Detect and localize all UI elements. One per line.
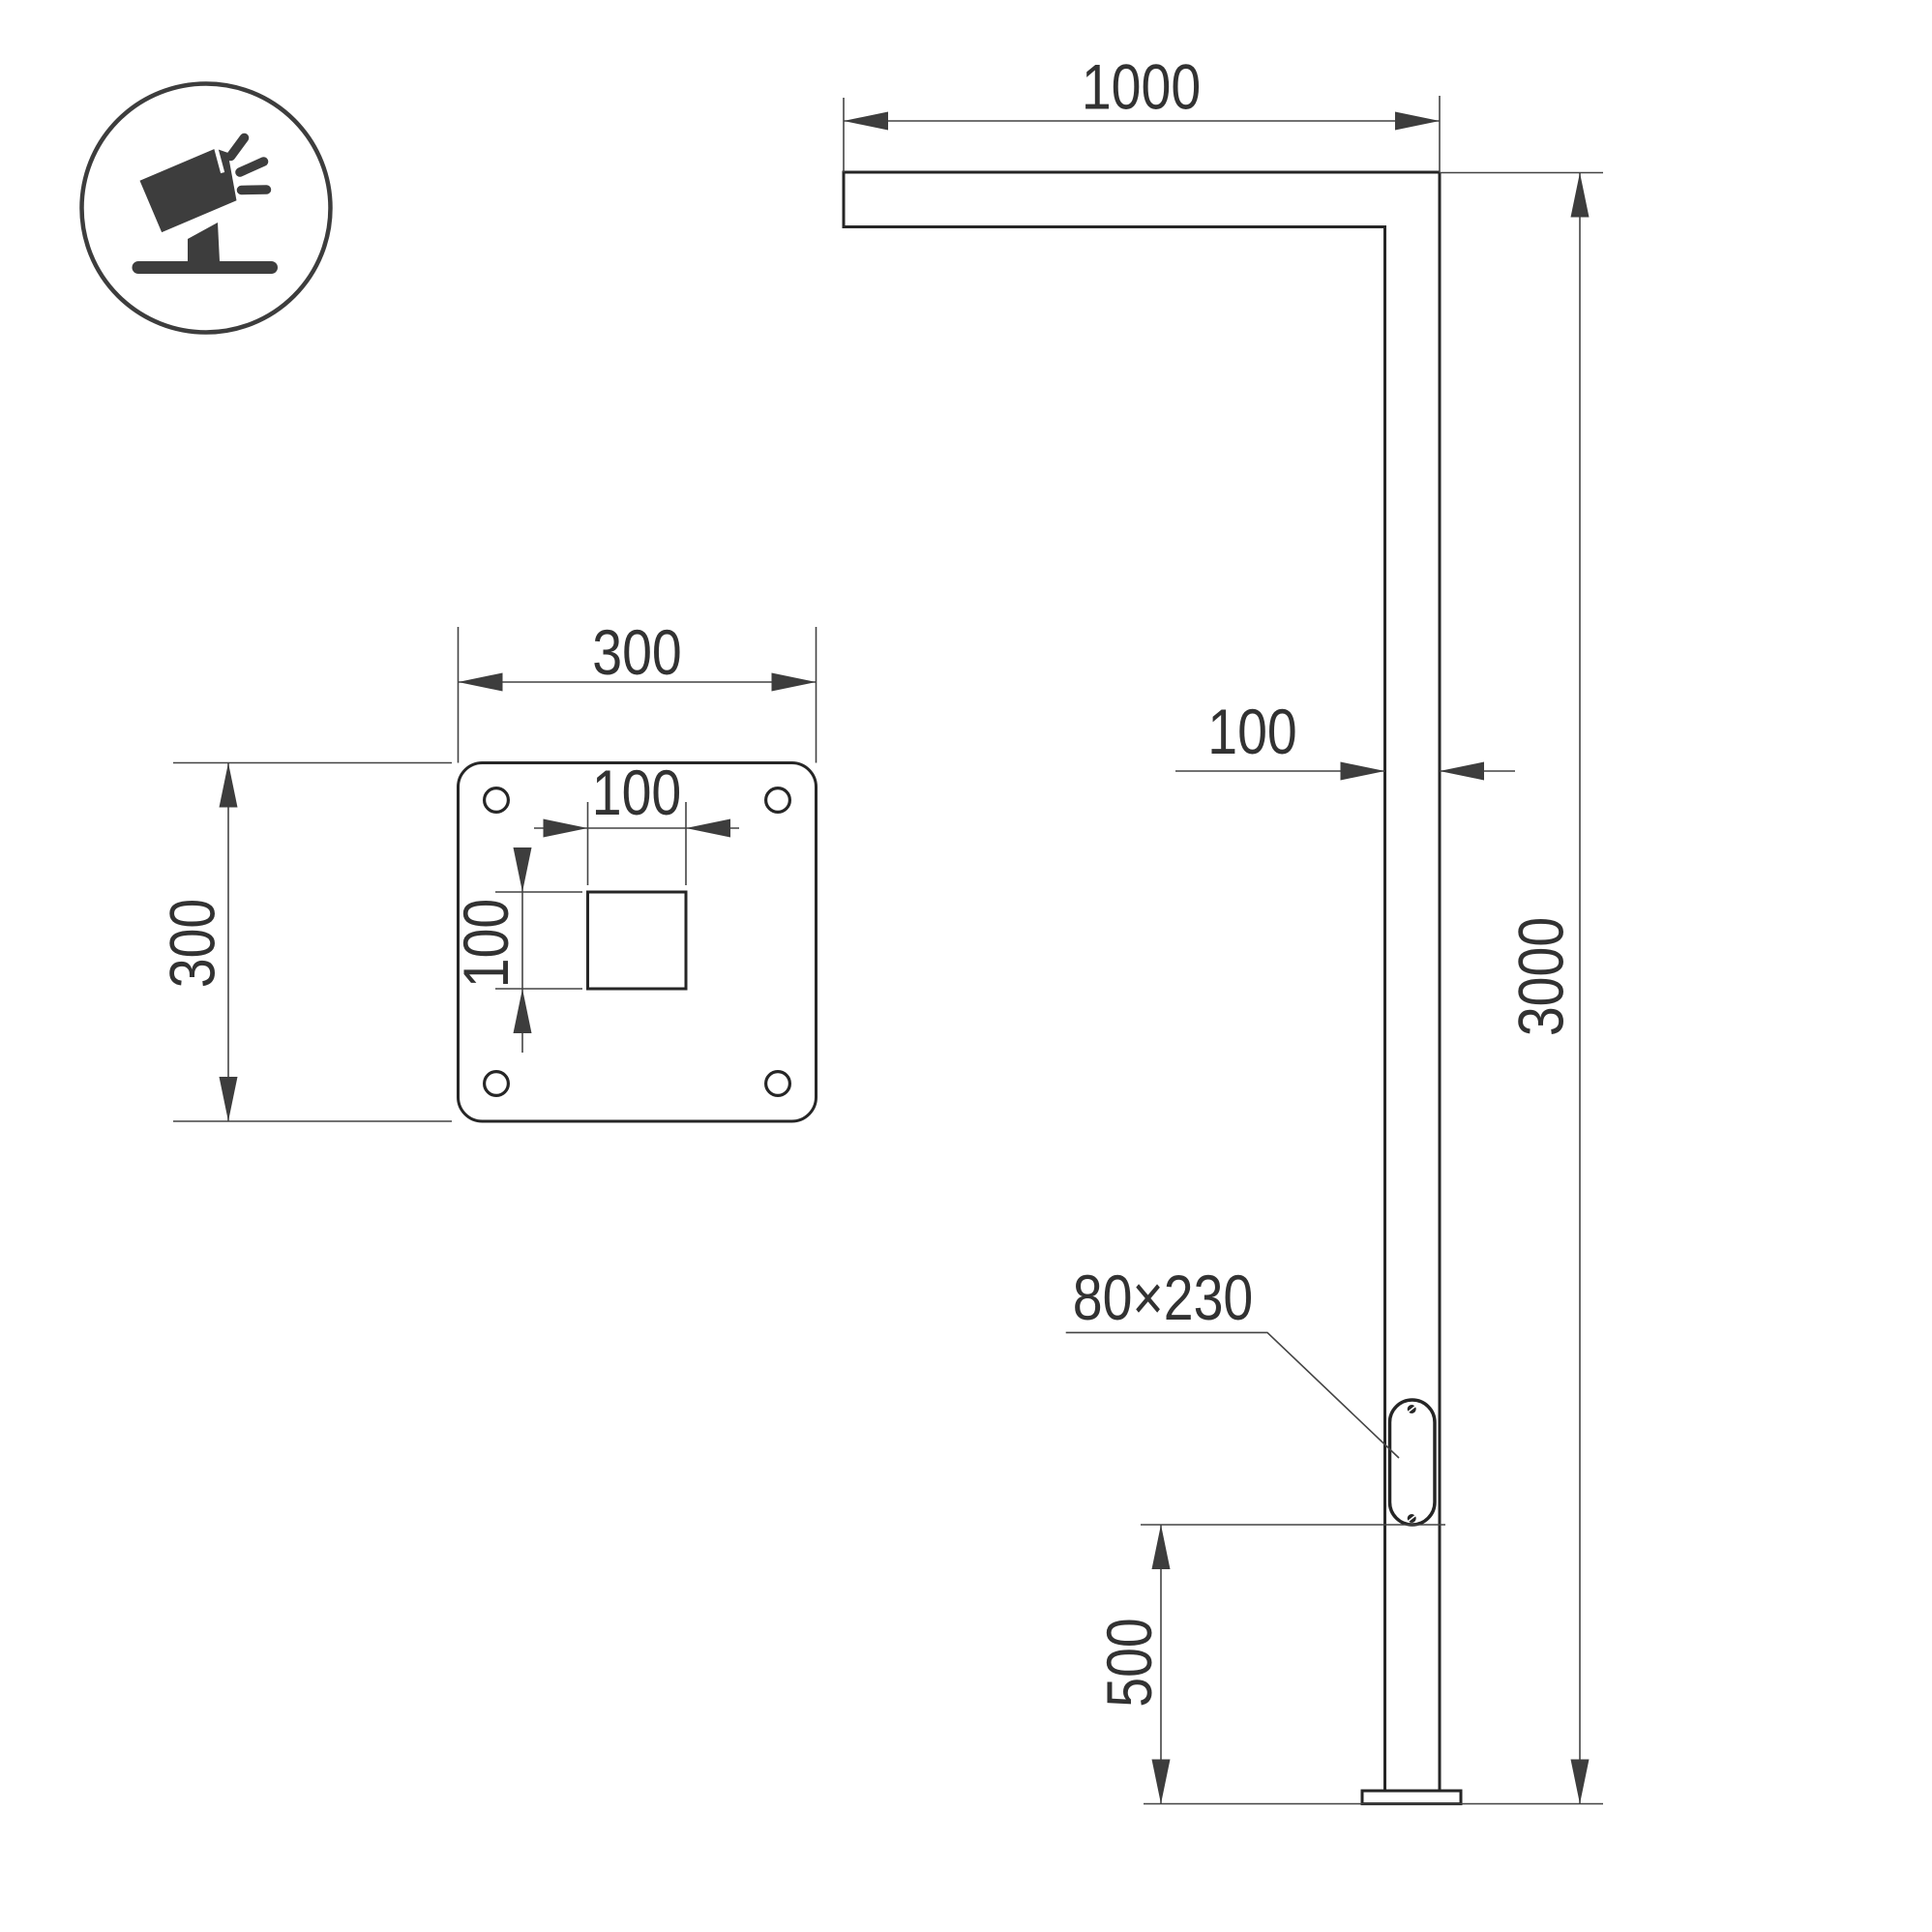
svg-text:300: 300 xyxy=(157,899,228,988)
svg-text:1000: 1000 xyxy=(1082,51,1201,123)
svg-text:80×230: 80×230 xyxy=(1073,1262,1254,1333)
svg-text:300: 300 xyxy=(592,616,681,688)
svg-text:100: 100 xyxy=(1207,696,1296,767)
svg-text:500: 500 xyxy=(1093,1618,1165,1707)
svg-text:100: 100 xyxy=(592,757,681,828)
svg-text:3000: 3000 xyxy=(1505,917,1577,1036)
svg-text:100: 100 xyxy=(450,899,521,988)
